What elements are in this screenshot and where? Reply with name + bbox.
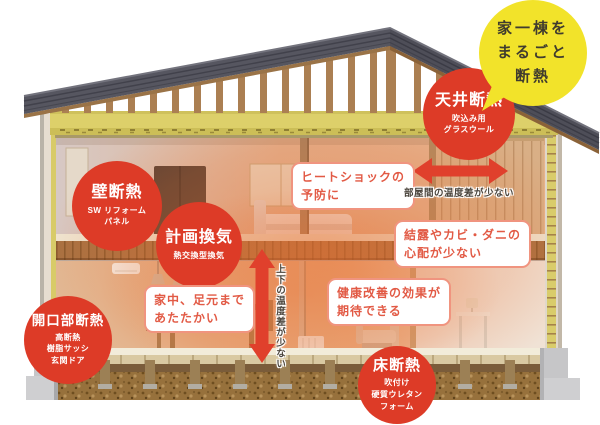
label-wall-insulation: 壁断熱 SW リフォーム パネル <box>72 161 162 251</box>
label-title: 計画換気 <box>165 229 233 247</box>
insulation-diagram: 家一棟を まるごと 断熱 天井断熱 吹込み用 グラスウール 壁断熱 SW リフォ… <box>0 0 600 425</box>
label-title: 開口部断熱 <box>32 314 105 329</box>
whole-house-insulation-badge: 家一棟を まるごと 断熱 <box>479 0 587 106</box>
label-title: 床断熱 <box>373 358 421 375</box>
label-subtitle: 高断熱 樹脂サッシ 玄関ドア <box>47 332 90 367</box>
badge-line: 断熱 <box>515 65 551 89</box>
label-planned-ventilation: 計画換気 熱交換型換気 <box>156 202 242 288</box>
foundation <box>55 348 553 400</box>
note-room-temperature-difference: 部屋間の温度差が少ない <box>404 185 514 199</box>
label-floor-insulation: 床断熱 吹付け 硬質ウレタン フォーム <box>358 346 436 424</box>
label-title: 壁断熱 <box>91 184 142 202</box>
label-opening-insulation: 開口部断熱 高断熱 樹脂サッシ 玄関ドア <box>24 296 112 384</box>
right-wall <box>545 131 562 359</box>
benefit-warmth: 家中、足元まで あたたかい <box>144 285 255 333</box>
benefit-heat-shock: ヒートショックの 予防に <box>291 162 415 210</box>
note-vertical-temperature-difference: 上下の温度差が少ない <box>272 264 286 369</box>
label-subtitle: 吹付け 硬質ウレタン フォーム <box>372 377 423 412</box>
badge-line: まるごと <box>497 41 569 65</box>
label-subtitle: 熱交換型換気 <box>174 250 225 262</box>
badge-line: 家一棟を <box>497 17 569 41</box>
benefit-health: 健康改善の効果が 期待できる <box>327 278 451 326</box>
label-subtitle: 吹込み用 グラスウール <box>444 113 495 136</box>
benefit-condensation: 結露やカビ・ダニの 心配が少ない <box>394 220 531 268</box>
label-subtitle: SW リフォーム パネル <box>88 205 147 228</box>
